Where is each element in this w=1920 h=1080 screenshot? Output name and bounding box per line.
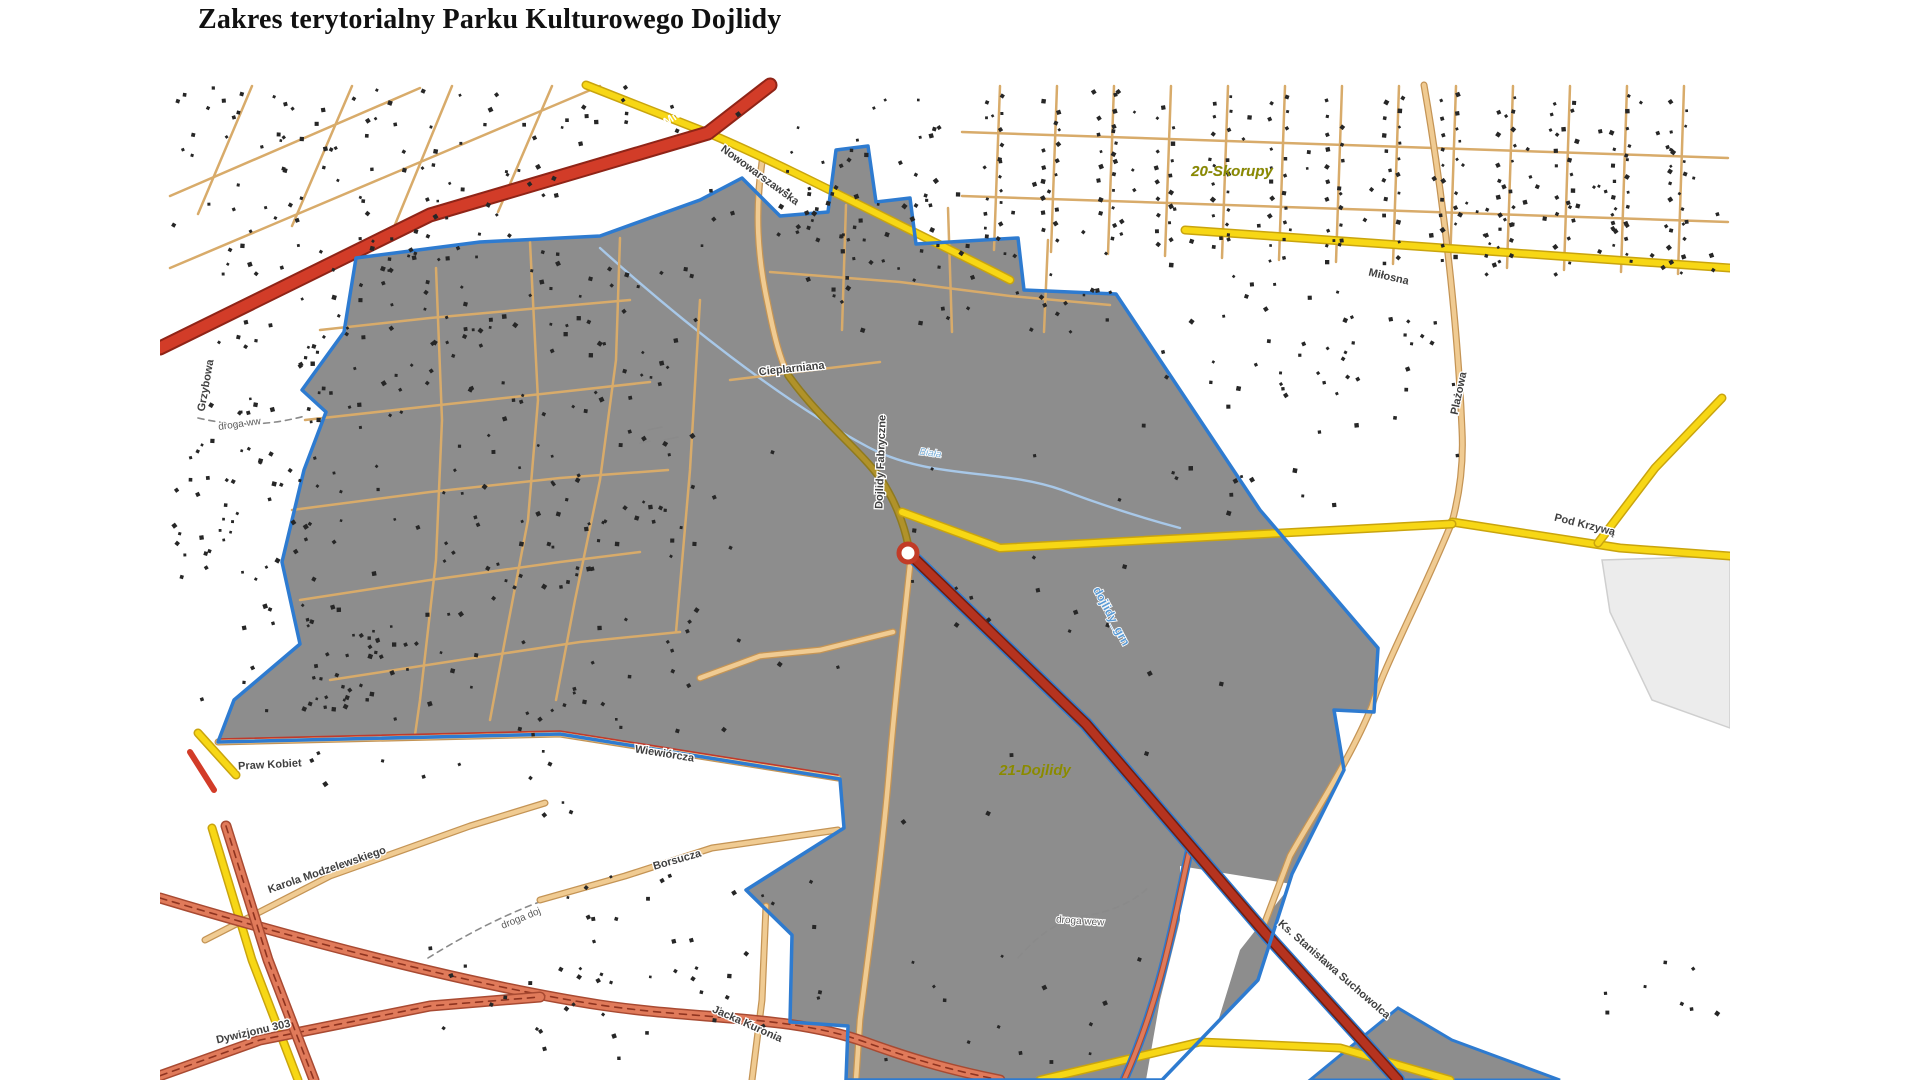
- building: [445, 256, 449, 260]
- building: [392, 642, 396, 646]
- building: [883, 98, 887, 102]
- building: [743, 951, 749, 957]
- building: [1325, 179, 1330, 184]
- building: [1685, 109, 1688, 112]
- minor-street: [1051, 86, 1057, 252]
- building: [288, 468, 293, 473]
- minor-street: [962, 132, 1728, 158]
- building: [1555, 132, 1560, 137]
- building: [578, 967, 582, 971]
- building: [265, 565, 269, 569]
- building: [1476, 210, 1479, 213]
- building: [1055, 238, 1059, 242]
- building: [393, 122, 397, 126]
- building: [1095, 288, 1100, 293]
- building: [683, 267, 688, 272]
- building: [797, 126, 800, 129]
- building: [1420, 334, 1425, 339]
- building: [1033, 454, 1037, 458]
- building: [232, 115, 236, 119]
- minor-street: [198, 86, 252, 214]
- building: [1226, 158, 1230, 162]
- building: [1441, 163, 1445, 167]
- building: [183, 93, 187, 97]
- building: [322, 781, 328, 787]
- building: [1684, 220, 1688, 224]
- building: [1212, 214, 1216, 218]
- building: [1455, 454, 1459, 458]
- building: [1335, 392, 1339, 396]
- building: [709, 189, 713, 193]
- building: [670, 105, 674, 109]
- building: [323, 705, 327, 709]
- building: [1383, 99, 1389, 105]
- building: [1081, 230, 1086, 235]
- building: [1324, 164, 1330, 170]
- building: [1263, 306, 1269, 312]
- building: [1403, 333, 1406, 336]
- building: [401, 149, 406, 154]
- building: [239, 92, 244, 97]
- building: [1041, 228, 1046, 233]
- building: [505, 170, 508, 173]
- building: [189, 456, 193, 460]
- minor-street: [1564, 86, 1570, 270]
- building: [242, 625, 247, 630]
- building: [1439, 98, 1443, 102]
- building: [316, 351, 319, 354]
- building: [586, 915, 591, 920]
- building: [1410, 342, 1413, 345]
- building: [619, 443, 623, 447]
- building: [1161, 350, 1165, 354]
- building: [690, 976, 696, 982]
- building: [1269, 147, 1273, 151]
- building: [242, 681, 246, 685]
- building: [1465, 201, 1469, 205]
- building: [268, 451, 273, 456]
- building: [1250, 282, 1254, 286]
- building: [358, 237, 361, 240]
- building: [1626, 158, 1629, 161]
- building: [495, 213, 499, 217]
- building: [1307, 150, 1311, 154]
- building: [1571, 188, 1575, 192]
- building: [231, 479, 236, 484]
- building: [1212, 245, 1216, 249]
- building: [725, 995, 730, 1000]
- building: [1114, 141, 1118, 145]
- building: [1267, 117, 1272, 122]
- building: [365, 118, 371, 124]
- building: [314, 664, 318, 668]
- building: [850, 149, 854, 153]
- building: [1336, 290, 1340, 294]
- building: [636, 285, 640, 289]
- building: [1381, 178, 1386, 183]
- building: [831, 287, 835, 291]
- building: [279, 139, 282, 142]
- building: [1495, 132, 1501, 138]
- minor-street: [1165, 86, 1171, 256]
- building: [1680, 1002, 1685, 1007]
- building: [428, 946, 432, 950]
- building: [858, 218, 862, 222]
- roundabout: [899, 544, 917, 562]
- building: [1397, 191, 1400, 194]
- building: [222, 518, 225, 521]
- building: [542, 750, 545, 753]
- building: [623, 85, 628, 90]
- building: [304, 356, 308, 360]
- building: [1383, 116, 1387, 120]
- building: [584, 527, 589, 532]
- building: [1626, 205, 1630, 209]
- building: [877, 203, 880, 206]
- building: [914, 203, 919, 208]
- building: [1111, 206, 1115, 210]
- building: [461, 492, 464, 495]
- street-label: Praw Kobiet: [238, 757, 302, 772]
- building: [1553, 102, 1557, 106]
- building: [1497, 260, 1501, 264]
- building: [1211, 131, 1216, 136]
- building: [856, 138, 859, 141]
- building: [999, 189, 1003, 193]
- building: [1668, 99, 1674, 105]
- building: [1611, 221, 1616, 226]
- building: [250, 665, 255, 670]
- building: [1345, 374, 1350, 379]
- building: [181, 148, 185, 152]
- building: [663, 509, 667, 513]
- building: [1268, 259, 1271, 262]
- building: [933, 178, 939, 184]
- building: [937, 265, 941, 269]
- building: [541, 812, 547, 818]
- building: [300, 137, 304, 141]
- building: [675, 128, 680, 133]
- building: [1684, 125, 1687, 128]
- building: [240, 244, 245, 249]
- building: [1155, 242, 1161, 248]
- building: [273, 216, 277, 220]
- building: [1561, 127, 1566, 132]
- building: [1492, 262, 1497, 267]
- building: [406, 668, 409, 671]
- building: [222, 273, 225, 276]
- building: [1691, 967, 1695, 971]
- building: [564, 1006, 570, 1012]
- building: [441, 1026, 445, 1030]
- building: [1326, 229, 1330, 233]
- building: [1382, 214, 1386, 218]
- road-stub: [190, 752, 214, 790]
- building: [619, 726, 622, 729]
- building: [1283, 220, 1287, 224]
- document-page: Zakres terytorialny Parku Kulturowego Do…: [0, 0, 1920, 1080]
- building: [243, 344, 248, 349]
- building: [1341, 356, 1346, 361]
- building: [1055, 207, 1059, 211]
- building: [1249, 477, 1255, 483]
- building: [174, 541, 180, 547]
- building: [1439, 213, 1443, 217]
- building: [195, 449, 200, 454]
- building: [561, 126, 564, 129]
- building: [331, 295, 337, 301]
- building: [310, 361, 314, 365]
- building: [912, 528, 917, 533]
- building: [965, 244, 969, 248]
- building: [254, 577, 258, 581]
- building: [1397, 108, 1402, 113]
- building: [1690, 1007, 1694, 1011]
- building: [491, 450, 495, 454]
- building: [923, 193, 927, 197]
- building: [463, 327, 467, 331]
- building: [872, 106, 876, 110]
- building: [421, 775, 425, 779]
- building: [1429, 233, 1434, 238]
- building: [1555, 164, 1558, 167]
- building: [1316, 371, 1320, 375]
- building: [502, 314, 507, 319]
- building: [1168, 237, 1173, 242]
- building: [1209, 381, 1213, 385]
- building: [1169, 263, 1174, 268]
- building: [199, 535, 204, 540]
- building: [863, 238, 866, 241]
- building: [1513, 144, 1517, 148]
- track-label: droga ww: [218, 416, 263, 433]
- building: [206, 106, 210, 110]
- building: [1625, 253, 1629, 257]
- building: [1227, 233, 1230, 236]
- building: [1554, 195, 1559, 200]
- building: [1267, 339, 1271, 343]
- building: [365, 698, 369, 702]
- building: [1326, 346, 1330, 350]
- building: [1665, 145, 1670, 150]
- building: [1301, 341, 1306, 346]
- building: [332, 471, 335, 474]
- building: [307, 346, 310, 349]
- building: [277, 132, 281, 136]
- building: [1284, 206, 1287, 209]
- building: [241, 571, 244, 574]
- building: [175, 99, 180, 104]
- building: [1440, 116, 1445, 121]
- building: [1168, 189, 1174, 195]
- building: [1709, 253, 1715, 259]
- building: [943, 998, 947, 1002]
- building: [212, 86, 215, 89]
- building: [982, 165, 986, 169]
- building: [1542, 216, 1547, 221]
- building: [845, 276, 849, 280]
- building: [1318, 430, 1322, 434]
- building: [919, 136, 922, 139]
- building: [670, 538, 674, 542]
- building: [483, 123, 487, 127]
- building: [1172, 126, 1176, 130]
- building: [1610, 213, 1614, 217]
- building: [1609, 130, 1615, 136]
- building: [1597, 184, 1601, 188]
- building: [1282, 191, 1287, 196]
- building: [624, 120, 628, 124]
- building: [1715, 212, 1719, 216]
- building: [530, 269, 533, 272]
- building: [1683, 160, 1686, 163]
- building: [179, 575, 183, 579]
- building: [842, 233, 845, 236]
- building: [1568, 261, 1571, 264]
- building: [1155, 116, 1159, 120]
- building: [597, 626, 602, 631]
- building: [985, 100, 990, 105]
- building: [928, 203, 932, 207]
- building: [464, 964, 467, 967]
- building: [1383, 262, 1387, 266]
- building: [956, 192, 960, 196]
- building: [337, 314, 341, 318]
- building: [222, 538, 225, 541]
- building: [611, 1033, 617, 1039]
- light-area: [1602, 556, 1730, 728]
- building: [575, 573, 578, 576]
- building: [558, 967, 563, 972]
- minor-street: [1450, 86, 1456, 266]
- building: [268, 607, 273, 612]
- building: [1570, 173, 1574, 177]
- building: [309, 758, 314, 763]
- building: [1337, 186, 1341, 190]
- building: [1680, 271, 1684, 275]
- building: [1057, 128, 1061, 132]
- building: [1669, 130, 1673, 134]
- building: [357, 403, 361, 407]
- building: [1597, 249, 1602, 254]
- building: [316, 418, 320, 422]
- building: [1604, 992, 1607, 995]
- building: [322, 166, 326, 170]
- building: [1112, 189, 1115, 192]
- building: [1572, 101, 1576, 105]
- building: [1383, 197, 1388, 202]
- building: [1236, 386, 1241, 391]
- building: [1041, 210, 1046, 215]
- building: [174, 488, 179, 493]
- building: [998, 175, 1002, 179]
- building: [219, 529, 222, 532]
- building: [1173, 207, 1177, 211]
- building: [699, 990, 703, 994]
- building: [1032, 182, 1037, 187]
- building: [625, 112, 629, 116]
- building: [786, 170, 789, 173]
- building: [1441, 259, 1444, 262]
- building: [1458, 140, 1461, 143]
- building: [649, 975, 652, 978]
- building: [249, 397, 252, 400]
- building: [1229, 95, 1232, 98]
- building: [692, 542, 696, 546]
- building: [1269, 180, 1273, 184]
- building: [358, 298, 362, 302]
- building: [1306, 167, 1309, 170]
- building: [807, 187, 811, 191]
- building: [554, 193, 559, 198]
- building: [1496, 195, 1501, 200]
- building: [307, 407, 311, 411]
- building: [1528, 175, 1532, 179]
- building: [614, 917, 618, 921]
- building: [489, 326, 492, 329]
- building: [581, 104, 587, 110]
- building: [376, 488, 379, 491]
- building: [991, 114, 995, 118]
- building: [1343, 350, 1347, 354]
- building: [1400, 96, 1405, 101]
- building: [319, 677, 323, 681]
- building: [1112, 223, 1117, 228]
- building: [1229, 110, 1232, 113]
- building: [459, 142, 462, 145]
- building: [337, 608, 342, 613]
- building: [1627, 191, 1630, 194]
- building: [517, 169, 520, 172]
- building: [1225, 222, 1229, 226]
- building: [1440, 198, 1444, 202]
- building: [425, 613, 429, 617]
- building: [538, 1029, 543, 1034]
- building: [421, 166, 425, 170]
- building: [1453, 255, 1457, 259]
- building: [1161, 105, 1166, 110]
- building: [489, 318, 493, 322]
- building: [1454, 222, 1457, 225]
- building: [595, 978, 601, 984]
- building: [1339, 238, 1343, 242]
- building: [1485, 208, 1489, 212]
- building: [1453, 205, 1458, 210]
- building: [1382, 133, 1387, 138]
- building: [283, 102, 288, 107]
- building: [562, 801, 565, 804]
- building: [318, 391, 321, 394]
- building: [1454, 191, 1458, 195]
- building: [841, 249, 845, 253]
- building: [556, 252, 560, 256]
- building: [1269, 244, 1272, 247]
- building: [1332, 239, 1335, 242]
- building: [425, 197, 430, 202]
- building: [617, 1057, 621, 1061]
- building: [1098, 164, 1104, 170]
- building: [1503, 218, 1507, 222]
- building: [1369, 187, 1374, 192]
- building: [264, 206, 268, 210]
- building: [1682, 222, 1686, 226]
- building: [228, 247, 233, 252]
- building: [830, 192, 834, 196]
- building: [601, 1012, 605, 1016]
- building: [235, 512, 239, 516]
- building: [1667, 168, 1673, 174]
- building: [1393, 416, 1397, 420]
